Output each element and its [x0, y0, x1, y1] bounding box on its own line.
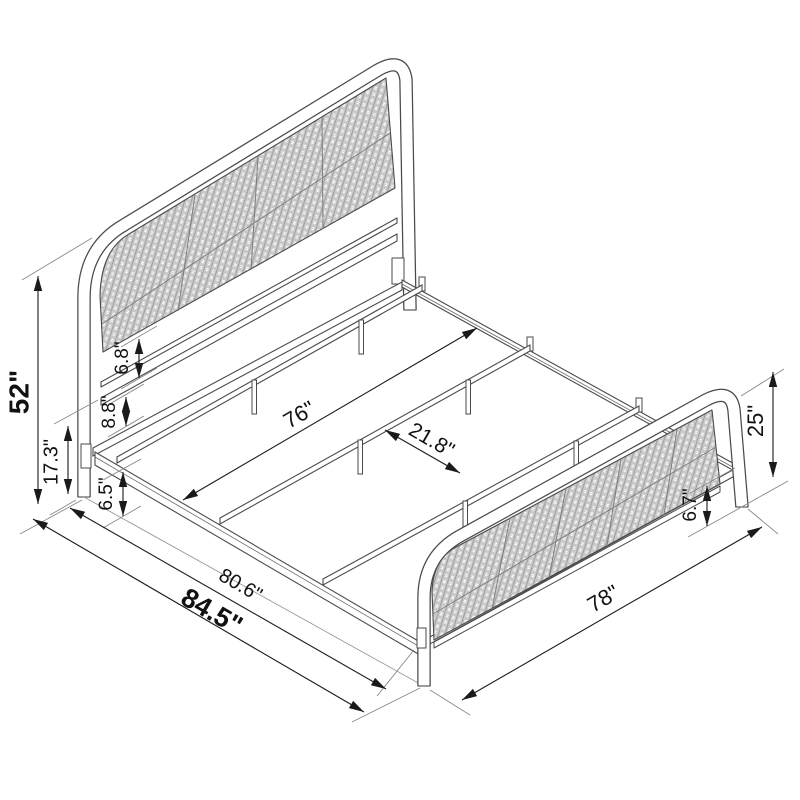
dim-label-rail-gap: 8.8": [99, 395, 120, 428]
dim-label-footboard-clearance: 6.7": [680, 488, 701, 521]
dim-label-headboard-lower-height: 17.3": [40, 439, 62, 485]
footboard-left-bracket: [417, 628, 426, 648]
drawing-canvas: 52" 17.3" 6.8" 8.8" 6.5": [0, 0, 800, 800]
headboard-left-bracket: [81, 444, 91, 468]
dim-label-panel-bottom-gap: 6.8": [112, 341, 133, 374]
dim-label-headboard-height: 52": [3, 370, 34, 414]
dim-label-floor-clearance: 6.5": [96, 477, 117, 510]
bed-frame-dimension-drawing: 52" 17.3" 6.8" 8.8" 6.5": [0, 0, 800, 800]
dim-label-footboard-height: 25": [743, 405, 768, 437]
